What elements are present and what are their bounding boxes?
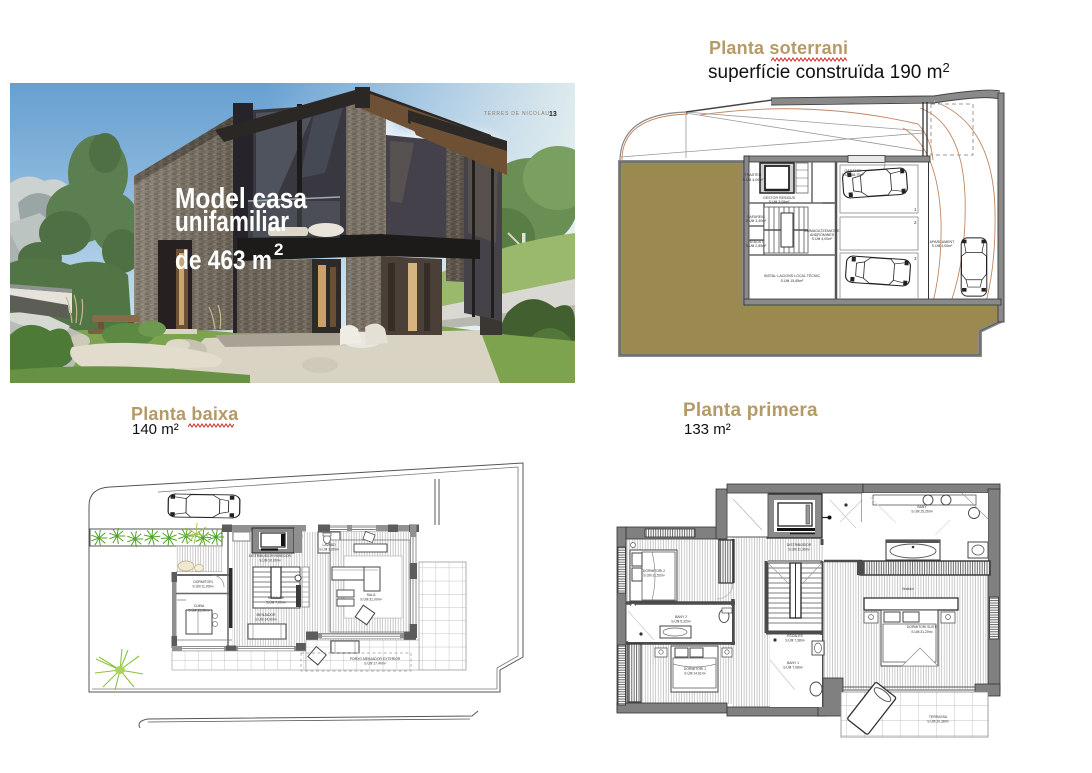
svg-text:S.Útil 11,30m²: S.Útil 11,30m²	[788, 547, 810, 552]
svg-text:SALA: SALA	[367, 593, 376, 597]
svg-text:ESCALES: ESCALES	[787, 634, 803, 638]
svg-text:S.Útil 3,40m²: S.Útil 3,40m²	[746, 218, 768, 223]
svg-text:S.Útil 7,00m²: S.Útil 7,00m²	[266, 600, 286, 605]
svg-text:LAVABO: LAVABO	[322, 543, 335, 547]
svg-text:S.Útil 11,00m²: S.Útil 11,00m²	[192, 584, 214, 589]
svg-text:MENJADOR: MENJADOR	[256, 613, 276, 617]
svg-text:2: 2	[274, 240, 283, 259]
svg-text:S.Útil 14,61m²: S.Útil 14,61m²	[684, 671, 706, 676]
svg-text:TRASTER: TRASTER	[745, 173, 762, 177]
svg-text:PORXO MENJADOR EXTERIOR: PORXO MENJADOR EXTERIOR	[350, 657, 401, 661]
svg-text:INSTAL·LACIONS LOCAL TÈCNIC: INSTAL·LACIONS LOCAL TÈCNIC	[764, 273, 821, 278]
svg-text:S.Útil 7,38m²: S.Útil 7,38m²	[785, 638, 805, 643]
svg-text:S.Útil 13,30m²: S.Útil 13,30m²	[188, 608, 210, 613]
svg-text:DORMITORI 2: DORMITORI 2	[643, 569, 665, 573]
svg-text:TERRASSA: TERRASSA	[929, 715, 948, 719]
svg-text:S.Útil 5,32m²: S.Útil 5,32m²	[671, 619, 691, 624]
svg-text:DORMITORI 1: DORMITORI 1	[684, 667, 706, 671]
svg-text:BANY: BANY	[917, 505, 927, 509]
svg-text:S.Útil 3,05m²: S.Útil 3,05m²	[769, 199, 791, 204]
svg-text:de 463 m: de 463 m	[175, 245, 272, 275]
svg-text:S.Útil 17,40m²: S.Útil 17,40m²	[364, 661, 386, 666]
svg-text:DORMITORI SUITE: DORMITORI SUITE	[907, 625, 938, 629]
svg-text:S.Útil 15,26m²: S.Útil 15,26m²	[911, 509, 933, 514]
svg-text:S.Útil 3,00m²: S.Útil 3,00m²	[319, 547, 339, 552]
svg-text:S.Útil 31,20m²: S.Útil 31,20m²	[911, 629, 933, 634]
svg-text:CUINA: CUINA	[194, 604, 205, 608]
svg-text:ESCALES: ESCALES	[268, 596, 284, 600]
svg-text:S.Útil 4,00m²: S.Útil 4,00m²	[812, 236, 834, 241]
svg-text:S.Útil 48,70m²: S.Útil 48,70m²	[842, 172, 866, 177]
svg-text:S.Útil 14,00m²: S.Útil 14,00m²	[255, 617, 277, 622]
svg-text:S.Útil 4,00m²: S.Útil 4,00m²	[932, 243, 954, 248]
svg-text:S.Útil 15,65m²: S.Útil 15,65m²	[781, 278, 805, 283]
svg-text:DISTRIBUÏDOR REBEDOR: DISTRIBUÏDOR REBEDOR	[249, 554, 292, 558]
svg-text:DISTRIBUÏDOR: DISTRIBUÏDOR	[787, 543, 812, 547]
svg-text:Vestidor: Vestidor	[902, 587, 915, 591]
svg-text:DORMITORI: DORMITORI	[193, 580, 212, 584]
svg-text:BANY 2: BANY 2	[675, 615, 687, 619]
svg-text:TERRES DE NICOLAU: TERRES DE NICOLAU	[484, 111, 550, 117]
svg-text:unifamiliar: unifamiliar	[175, 206, 289, 238]
svg-text:S.Útil 10,00m²: S.Útil 10,00m²	[259, 558, 281, 563]
svg-text:BANY 1: BANY 1	[787, 661, 799, 665]
svg-text:S.Útil 11,52m²: S.Útil 11,52m²	[643, 573, 665, 578]
svg-text:13: 13	[549, 111, 557, 118]
svg-text:S.Útil 10,38m²: S.Útil 10,38m²	[927, 719, 949, 724]
svg-text:S.Útil 4,00m²: S.Útil 4,00m²	[743, 177, 765, 182]
svg-text:S.Útil 7,08m²: S.Útil 7,08m²	[783, 665, 803, 670]
svg-text:S.Útil 2,85m²: S.Útil 2,85m²	[746, 243, 768, 248]
svg-text:S.Útil 31,00m²: S.Útil 31,00m²	[360, 597, 382, 602]
